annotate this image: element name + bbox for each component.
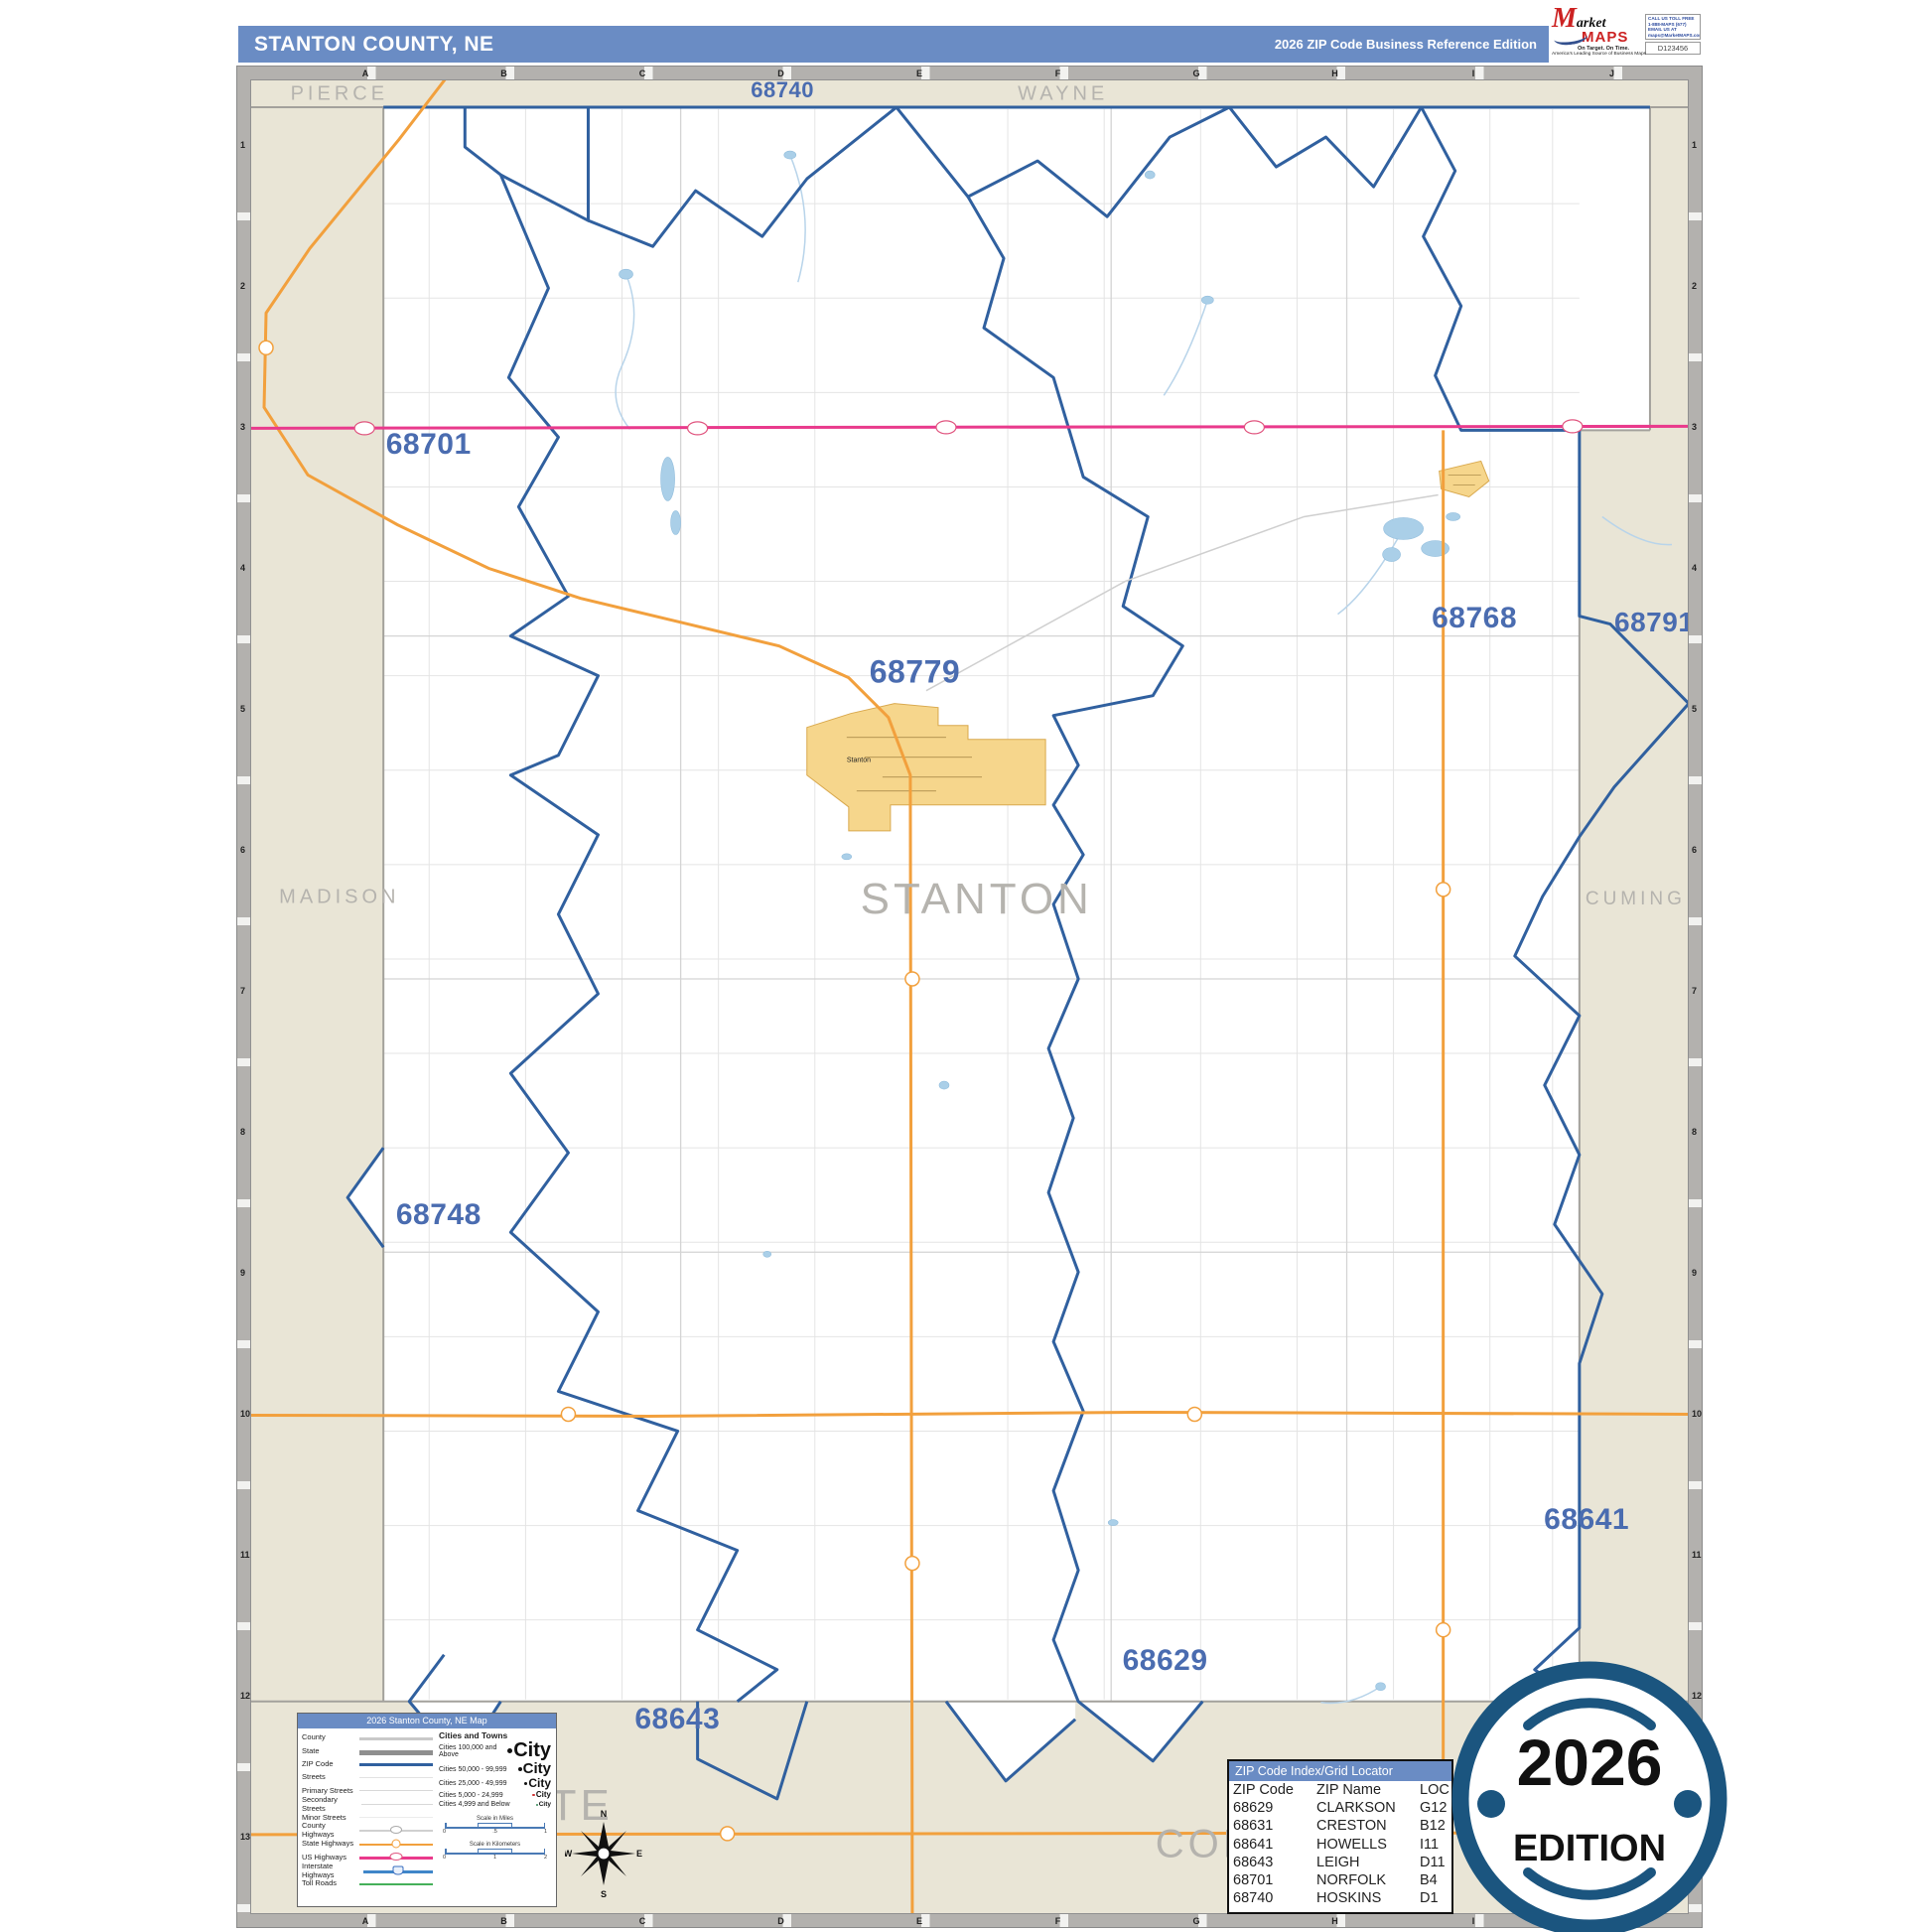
grid-letter-F: F — [1055, 1916, 1061, 1926]
city-dot-icon — [507, 1748, 512, 1753]
grid-number-8: 8 — [240, 1127, 245, 1137]
city-sample-s3: City — [524, 1777, 551, 1790]
legend-city-label: Cities 25,000 - 49,999 — [439, 1780, 507, 1787]
legend-item-state: State — [298, 1743, 437, 1756]
legend-item-state-hwy: State Highways — [298, 1837, 437, 1850]
zip-label-68748: 68748 — [396, 1198, 482, 1232]
badge-edition-word: EDITION — [1513, 1828, 1666, 1869]
grid-number-9: 9 — [1692, 1268, 1697, 1278]
us-hwy-line-sample — [359, 1852, 433, 1862]
tick: 1 — [544, 1829, 547, 1835]
page: STANTON COUNTY, NE 2026 ZIP Code Busines… — [0, 0, 1932, 1932]
map-frame: ABCDEFGHIJ ABCDEFGHIJ 12345678910111213 … — [236, 66, 1703, 1928]
legend-item-label: Secondary Streets — [302, 1795, 361, 1813]
logo-brand: Market MAPS On Target. On Time. America'… — [1552, 12, 1645, 68]
city-sample-s5: City — [536, 1800, 551, 1809]
cell: LEIGH — [1316, 1854, 1420, 1871]
county-hwy-shield-icon — [390, 1826, 402, 1834]
cell: 68641 — [1233, 1836, 1316, 1854]
legend-city-s4: Cities 5,000 - 24,999City — [437, 1790, 553, 1800]
city-dot-icon — [532, 1794, 535, 1797]
legend-item-county-hwy: County Highways — [298, 1824, 437, 1837]
cell: 68631 — [1233, 1817, 1316, 1835]
edition-subtitle: 2026 ZIP Code Business Reference Edition — [1275, 26, 1537, 63]
badge-year: 2026 — [1517, 1725, 1663, 1799]
zip-index-table: ZIP Code Index/Grid Locator ZIP Code ZIP… — [1227, 1759, 1453, 1914]
grid-letter-D: D — [777, 69, 784, 78]
zip-label-68629: 68629 — [1123, 1644, 1208, 1678]
grid-number-2: 2 — [1692, 281, 1697, 291]
zip-label-68791: 68791 — [1614, 607, 1694, 638]
legend-item-secondary: Secondary Streets — [298, 1797, 437, 1810]
legend-item-label: County — [302, 1732, 326, 1741]
zip-index-title: ZIP Code Index/Grid Locator — [1229, 1761, 1451, 1781]
legend-city-label: Cities 5,000 - 24,999 — [439, 1792, 503, 1799]
city-dot-icon — [524, 1782, 528, 1786]
grid-letter-B: B — [500, 1916, 507, 1926]
grid-letter-H: H — [1331, 69, 1338, 78]
zip-label-68643: 68643 — [634, 1703, 720, 1736]
grid-number-5: 5 — [1692, 704, 1697, 714]
state-hwy-line-sample — [359, 1839, 433, 1849]
legend-item-label: County Highways — [302, 1821, 359, 1839]
state-hwy-shield-icon — [392, 1839, 401, 1848]
town-label-stanton: Stanton — [847, 757, 871, 763]
grid-number-5: 5 — [240, 704, 245, 714]
cell: HOSKINS — [1316, 1889, 1420, 1907]
grid-number-6: 6 — [240, 845, 245, 855]
cell: 68740 — [1233, 1889, 1316, 1907]
tick: 0 — [443, 1829, 446, 1835]
header-bar: STANTON COUNTY, NE 2026 ZIP Code Busines… — [238, 26, 1549, 63]
grid-letter-B: B — [500, 69, 507, 78]
grid-number-13: 13 — [240, 1832, 250, 1842]
grid-number-3: 3 — [1692, 422, 1697, 432]
legend-item-toll: Toll Roads — [298, 1876, 437, 1889]
scale-km-bar — [445, 1848, 545, 1855]
grid-number-4: 4 — [1692, 563, 1697, 573]
cell: 68643 — [1233, 1854, 1316, 1871]
logo-maps-word: MAPS — [1582, 29, 1645, 46]
city-dot-icon — [536, 1804, 538, 1806]
zip-label-68768: 68768 — [1432, 602, 1517, 635]
grid-number-1: 1 — [240, 140, 245, 150]
zip-index-row-68701: 68701NORFOLKB4 — [1229, 1871, 1451, 1889]
city-sample-s4: City — [532, 1790, 551, 1800]
legend-item-label: Primary Streets — [302, 1786, 353, 1795]
logo-product-code: D123456 — [1645, 42, 1701, 55]
legend-city-s5: Cities 4,999 and BelowCity — [437, 1800, 553, 1809]
grid-letter-I: I — [1472, 69, 1475, 78]
scale-km: Scale in Kilometers 0 1 2 — [437, 1842, 553, 1861]
minor-line-sample — [359, 1812, 433, 1822]
grid-number-6: 6 — [1692, 845, 1697, 855]
zip-index-row-68631: 68631CRESTONB12 — [1229, 1817, 1451, 1835]
cell: HOWELLS — [1316, 1836, 1420, 1854]
map-content: PIERCEWAYNEMADISONSTANTONCUMINGPLATTECOL… — [250, 79, 1689, 1914]
grid-letter-E: E — [916, 69, 922, 78]
legend-item-label: State Highways — [302, 1839, 353, 1848]
compass-rose-icon: N S W E — [565, 1808, 642, 1899]
legend-item-county: County — [298, 1730, 437, 1743]
tick: 1 — [493, 1855, 496, 1861]
grid-letter-A: A — [362, 1916, 369, 1926]
toll-line-sample — [359, 1878, 433, 1888]
legend-item-zip: ZIP Code — [298, 1757, 437, 1770]
grid-ruler-top: ABCDEFGHIJ — [237, 67, 1702, 80]
legend-item-label: ZIP Code — [302, 1759, 334, 1768]
legend-item-streets: Streets — [298, 1770, 437, 1783]
grid-number-11: 11 — [240, 1550, 250, 1560]
legend: 2026 Stanton County, NE Map CountyStateZ… — [297, 1713, 557, 1907]
legend-body: CountyStateZIP CodeStreetsPrimary Street… — [298, 1728, 556, 1890]
legend-item-label: Interstate Highways — [302, 1862, 363, 1879]
grid-number-8: 8 — [1692, 1127, 1697, 1137]
compass-n: N — [601, 1809, 608, 1819]
page-title: STANTON COUNTY, NE — [254, 26, 494, 63]
legend-city-label: Cities 50,000 - 99,999 — [439, 1766, 507, 1773]
legend-city-s2: Cities 50,000 - 99,999City — [437, 1761, 553, 1777]
cell: NORFOLK — [1316, 1871, 1420, 1889]
zip-index-header-row: ZIP Code ZIP Name LOC — [1229, 1781, 1451, 1799]
legend-city-items: Cities 100,000 and AboveCityCities 50,00… — [437, 1740, 553, 1809]
grid-number-7: 7 — [240, 986, 245, 996]
legend-city-s3: Cities 25,000 - 49,999City — [437, 1777, 553, 1790]
grid-ruler-right: 12345678910111213 — [1688, 79, 1702, 1914]
grid-number-2: 2 — [240, 281, 245, 291]
zip-index-row-68629: 68629CLARKSONG12 — [1229, 1799, 1451, 1817]
scale-km-ticks: 0 1 2 — [443, 1855, 547, 1861]
city-dot-icon — [518, 1767, 522, 1771]
zip-index-body: 68629CLARKSONG1268631CRESTONB1268641HOWE… — [1229, 1799, 1451, 1907]
legend-item-label: US Highways — [302, 1853, 346, 1862]
city-sample-s1: City — [507, 1740, 551, 1761]
legend-title: 2026 Stanton County, NE Map — [298, 1714, 556, 1728]
tick: .5 — [492, 1829, 497, 1835]
primary-line-sample — [359, 1785, 433, 1795]
scale-miles-ticks: 0 .5 1 — [443, 1829, 547, 1835]
legend-item-interstate: Interstate Highways — [298, 1863, 437, 1876]
grid-number-10: 10 — [1692, 1409, 1702, 1419]
tick: 0 — [443, 1855, 446, 1861]
grid-ruler-left: 12345678910111213 — [237, 79, 251, 1914]
marketmaps-logo: Market MAPS On Target. On Time. America'… — [1552, 12, 1703, 68]
legend-line-items: CountyStateZIP CodeStreetsPrimary Street… — [298, 1728, 437, 1890]
streets-line-sample — [359, 1772, 433, 1782]
county-label-pierce: PIERCE — [291, 82, 388, 105]
county-hwy-line-sample — [359, 1825, 433, 1835]
compass-e: E — [636, 1849, 642, 1859]
zip-index-row-68641: 68641HOWELLSI11 — [1229, 1836, 1451, 1854]
logo-contact-block: CALL US TOLL FREE 1-888-MAPS (677) EMAIL… — [1645, 12, 1701, 68]
legend-city-label: Cities 100,000 and Above — [439, 1744, 507, 1758]
tick: 2 — [544, 1855, 547, 1861]
grid-letter-C: C — [639, 1916, 646, 1926]
zip-label-68641: 68641 — [1544, 1503, 1629, 1537]
legend-item-label: Toll Roads — [302, 1878, 337, 1887]
legend-item-label: State — [302, 1746, 320, 1755]
contact-call: CALL US TOLL FREE — [1648, 16, 1698, 22]
zip-index-row-68740: 68740HOSKINSD1 — [1229, 1889, 1451, 1907]
grid-letter-F: F — [1055, 69, 1061, 78]
col-zip-name: ZIP Name — [1316, 1781, 1420, 1799]
zip-label-68779: 68779 — [870, 653, 960, 690]
county-label-stanton: STANTON — [861, 875, 1093, 924]
legend-item-label: Streets — [302, 1772, 326, 1781]
grid-letter-D: D — [777, 1916, 784, 1926]
edition-badge: 2026 EDITION — [1445, 1654, 1734, 1932]
grid-number-10: 10 — [240, 1409, 250, 1419]
grid-number-9: 9 — [240, 1268, 245, 1278]
cell: CRESTON — [1316, 1817, 1420, 1835]
grid-number-4: 4 — [240, 563, 245, 573]
cell: CLARKSON — [1316, 1799, 1420, 1817]
interstate-shield-icon — [393, 1865, 404, 1874]
grid-number-12: 12 — [240, 1691, 250, 1701]
scale-miles: Scale in Miles 0 .5 1 — [437, 1816, 553, 1835]
zip-label-68740: 68740 — [751, 77, 814, 103]
zip-index-row-68643: 68643LEIGHD11 — [1229, 1854, 1451, 1871]
county-line-sample — [359, 1732, 433, 1742]
col-zip-code: ZIP Code — [1233, 1781, 1316, 1799]
contact-email: maps@MarketMAPS.com — [1648, 33, 1698, 39]
city-sample-s2: City — [518, 1761, 551, 1777]
grid-number-3: 3 — [240, 422, 245, 432]
grid-number-11: 11 — [1692, 1550, 1702, 1560]
zip-line-sample — [359, 1758, 433, 1768]
county-label-wayne: WAYNE — [1018, 82, 1108, 105]
compass-w: W — [565, 1849, 573, 1859]
cell: 68701 — [1233, 1871, 1316, 1889]
grid-number-1: 1 — [1692, 140, 1697, 150]
grid-number-7: 7 — [1692, 986, 1697, 996]
map-labels-layer: PIERCEWAYNEMADISONSTANTONCUMINGPLATTECOL… — [250, 79, 1689, 1914]
grid-letter-A: A — [362, 69, 369, 78]
legend-cities: Cities and Towns Cities 100,000 and Abov… — [437, 1728, 556, 1890]
compass-s: S — [601, 1889, 607, 1899]
interstate-line-sample — [363, 1865, 433, 1875]
grid-letter-J: J — [1609, 69, 1614, 78]
county-label-madison: MADISON — [279, 887, 399, 909]
scale-miles-bar — [445, 1822, 545, 1829]
grid-letter-G: G — [1192, 69, 1199, 78]
grid-letter-H: H — [1331, 1916, 1338, 1926]
legend-city-label: Cities 4,999 and Below — [439, 1801, 510, 1808]
zip-label-68701: 68701 — [386, 428, 472, 462]
legend-city-s1: Cities 100,000 and AboveCity — [437, 1740, 553, 1761]
logo-contact-box: CALL US TOLL FREE 1-888-MAPS (677) EMAIL… — [1645, 14, 1701, 40]
us-hwy-shield-icon — [390, 1853, 403, 1861]
grid-letter-C: C — [639, 69, 646, 78]
secondary-line-sample — [361, 1799, 433, 1809]
state-line-sample — [359, 1745, 433, 1755]
cell: 68629 — [1233, 1799, 1316, 1817]
grid-letter-G: G — [1192, 1916, 1199, 1926]
county-label-cuming: CUMING — [1586, 889, 1686, 910]
logo-subtitle: America's Leading Source of Business Map… — [1552, 52, 1645, 57]
legend-item-label: Minor Streets — [302, 1813, 346, 1822]
grid-letter-E: E — [916, 1916, 922, 1926]
